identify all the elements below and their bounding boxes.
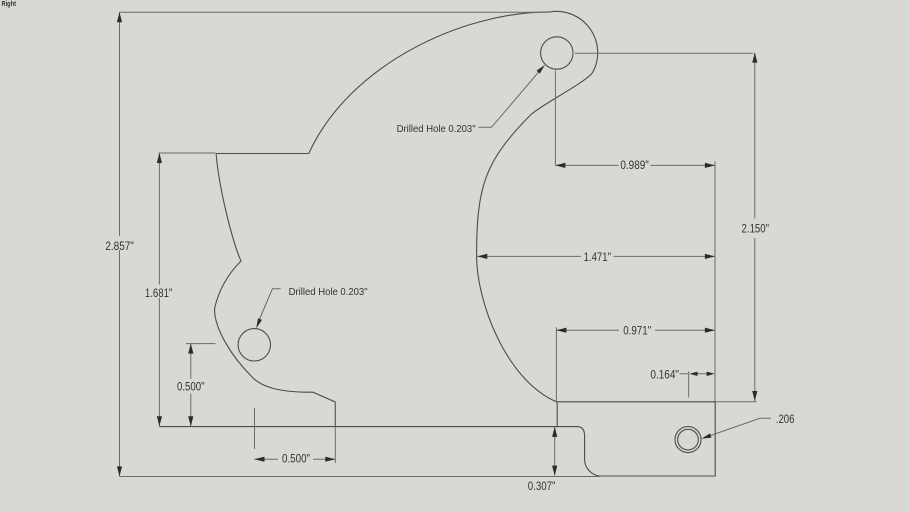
svg-text:0.307": 0.307" — [528, 479, 556, 493]
svg-text:1.681": 1.681" — [145, 286, 173, 300]
svg-text:0.500": 0.500" — [282, 452, 310, 466]
svg-text:1.471": 1.471" — [584, 250, 611, 264]
svg-text:Drilled Hole 0.203": Drilled Hole 0.203" — [289, 286, 368, 298]
svg-text:0.989": 0.989" — [620, 158, 649, 172]
svg-text:.206: .206 — [776, 412, 795, 426]
svg-text:0.971": 0.971" — [623, 324, 651, 338]
svg-text:0.164": 0.164" — [650, 367, 679, 381]
svg-text:2.150": 2.150" — [742, 222, 770, 236]
svg-text:Right: Right — [2, 1, 17, 8]
svg-text:2.857": 2.857" — [105, 239, 134, 253]
svg-text:0.500": 0.500" — [177, 379, 205, 393]
svg-text:Drilled Hole 0.203": Drilled Hole 0.203" — [397, 123, 476, 135]
